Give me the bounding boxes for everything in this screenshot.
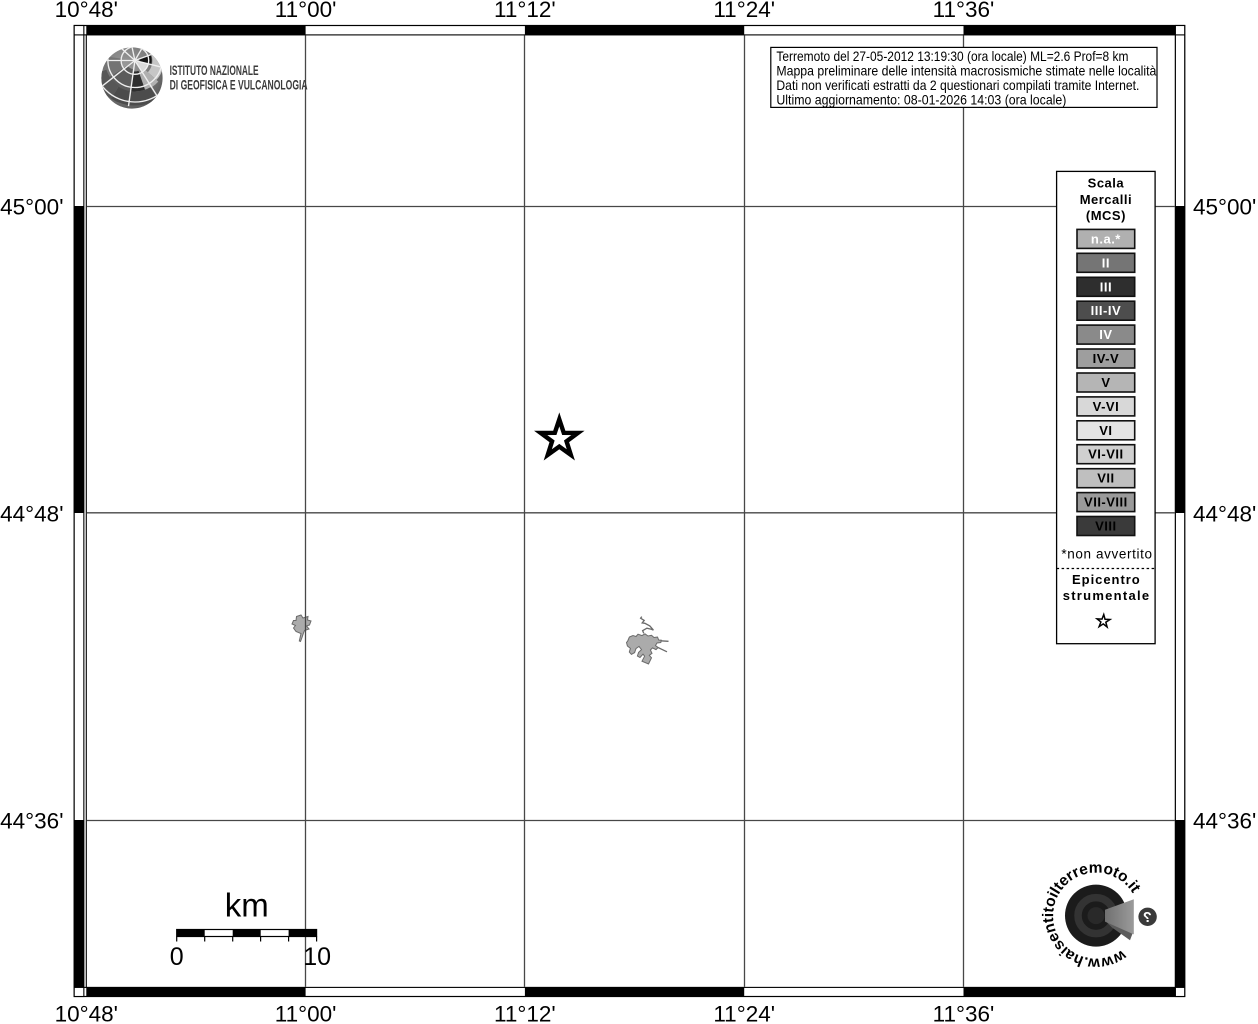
svg-text:44°48': 44°48' <box>0 502 63 527</box>
svg-text:44°48': 44°48' <box>1193 502 1256 527</box>
svg-text:VII-VIII: VII-VIII <box>1084 495 1128 510</box>
svg-text:44°36': 44°36' <box>1193 809 1256 834</box>
svg-text:11°36': 11°36' <box>933 1001 995 1024</box>
svg-text:11°24': 11°24' <box>713 1001 775 1024</box>
svg-text:km: km <box>225 886 269 923</box>
svg-text:Epicentro: Epicentro <box>1072 572 1140 587</box>
svg-text:0: 0 <box>170 943 184 971</box>
svg-text:10: 10 <box>303 943 331 971</box>
svg-text:n.a.*: n.a.* <box>1091 231 1121 246</box>
svg-text:IV-V: IV-V <box>1093 351 1120 366</box>
svg-text:V-VI: V-VI <box>1093 399 1120 414</box>
svg-text:VI: VI <box>1099 423 1112 438</box>
svg-text:ISTITUTO NAZIONALE: ISTITUTO NAZIONALE <box>170 63 259 78</box>
svg-text:VIII: VIII <box>1095 519 1117 534</box>
svg-text:III-IV: III-IV <box>1091 303 1121 318</box>
svg-text:III: III <box>1100 279 1112 294</box>
svg-text:11°00': 11°00' <box>275 0 337 22</box>
svg-text:IV: IV <box>1099 327 1112 342</box>
svg-text:(MCS): (MCS) <box>1086 208 1126 223</box>
svg-text:11°00': 11°00' <box>275 1001 337 1024</box>
svg-text:45°00': 45°00' <box>1193 195 1256 220</box>
svg-text:45°00': 45°00' <box>0 195 63 220</box>
svg-text:10°48': 10°48' <box>55 0 118 22</box>
svg-text:Ultimo aggiornamento: 08-01-20: Ultimo aggiornamento: 08-01-2026 14:03 (… <box>776 92 1066 108</box>
svg-text:10°48': 10°48' <box>55 1001 118 1024</box>
svg-text:DI GEOFISICA E VULCANOLOGIA: DI GEOFISICA E VULCANOLOGIA <box>170 78 308 93</box>
svg-text:II: II <box>1102 255 1110 270</box>
svg-text:Scala: Scala <box>1088 176 1125 191</box>
svg-text:*non avvertito: *non avvertito <box>1061 547 1152 562</box>
svg-text:44°36': 44°36' <box>0 809 63 834</box>
svg-text:11°12': 11°12' <box>494 1001 556 1024</box>
svg-text:11°36': 11°36' <box>933 0 995 22</box>
svg-text:11°12': 11°12' <box>494 0 556 22</box>
svg-text:V: V <box>1101 375 1110 390</box>
svg-text:11°24': 11°24' <box>713 0 775 22</box>
svg-text:VI-VII: VI-VII <box>1088 447 1124 462</box>
svg-text:Mercalli: Mercalli <box>1080 192 1132 207</box>
svg-text:VII: VII <box>1097 471 1114 486</box>
svg-text:?: ? <box>1143 910 1152 926</box>
